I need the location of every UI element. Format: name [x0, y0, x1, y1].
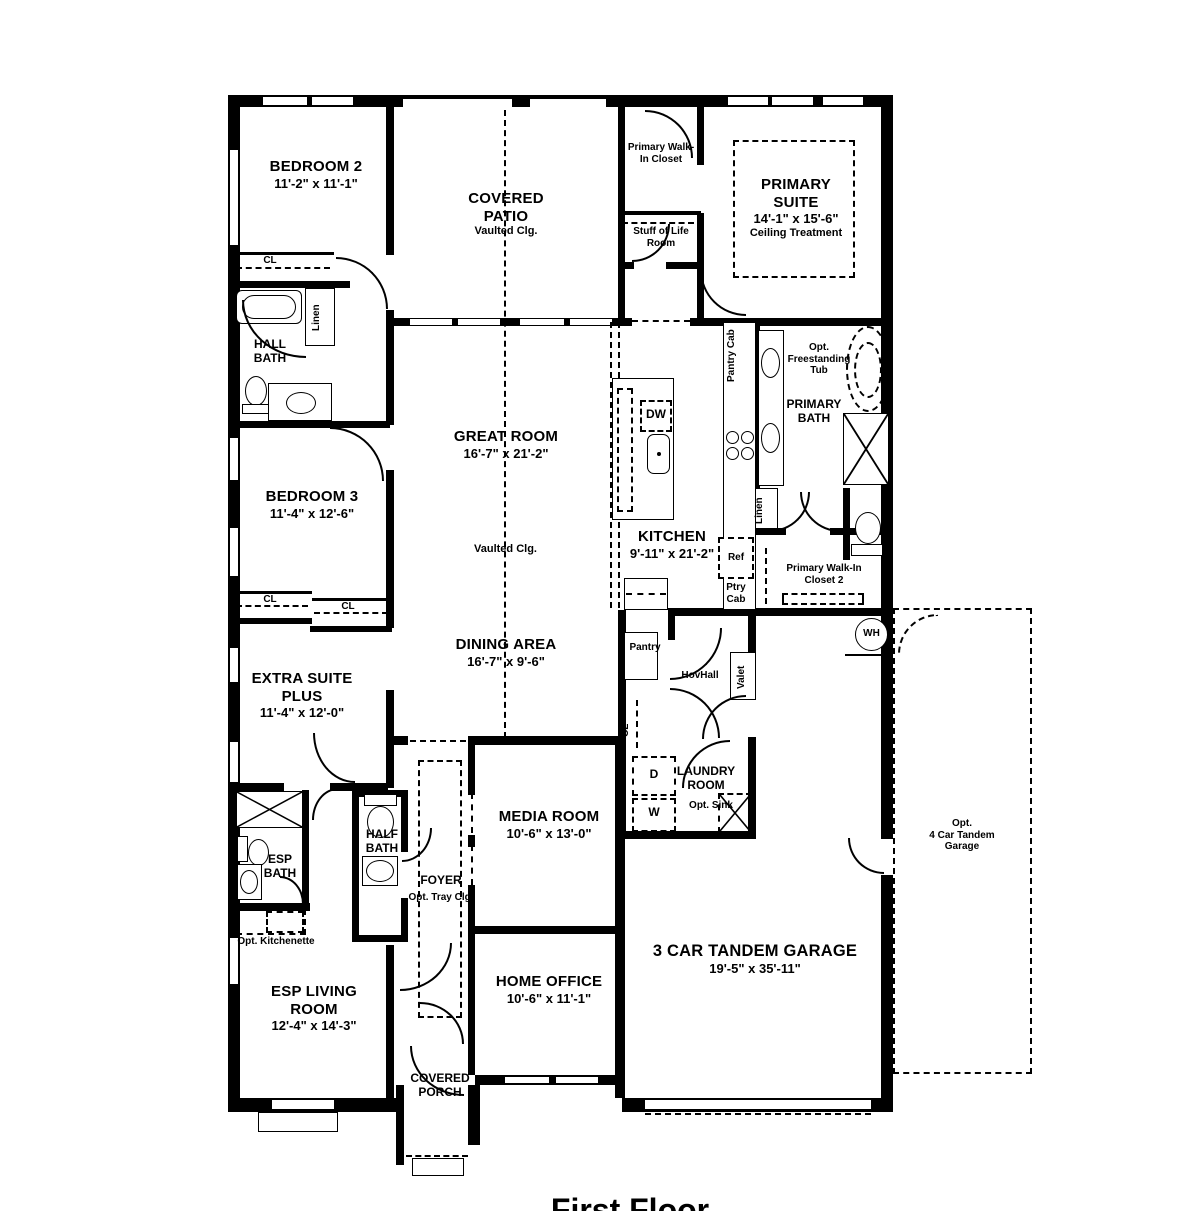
- window: [229, 438, 239, 480]
- room-name: 3 CAR TANDEM GARAGE: [620, 942, 890, 961]
- closet-shelf-dash: [236, 267, 330, 269]
- garage-door: [645, 1099, 871, 1110]
- hall-closet-front: [636, 700, 638, 748]
- opt-kitchenette-label: Opt. Kitchenette: [230, 936, 322, 948]
- washer-label: W: [632, 806, 676, 820]
- room-label-great-room: GREAT ROOM 16'-7" x 21'-2": [440, 428, 572, 461]
- faucet-dot: [657, 452, 661, 456]
- cooktop-burner: [741, 431, 754, 444]
- window: [263, 96, 307, 106]
- wall: [310, 626, 392, 632]
- wh-label: WH: [855, 628, 888, 640]
- room-label-covered-patio: COVERED PATIO Vaulted Clg.: [460, 190, 552, 238]
- room-label-hovhall: HovHall: [670, 670, 730, 682]
- wall-post: [390, 95, 403, 107]
- wall: [468, 885, 475, 1075]
- wall: [398, 95, 618, 99]
- door-arc: [313, 733, 355, 783]
- linen-label: Linen: [754, 490, 765, 532]
- room-name: BEDROOM 2: [240, 158, 392, 176]
- wall: [228, 783, 284, 791]
- garage-door-dash: [645, 1113, 871, 1115]
- great-room-ceiling-label: Vaulted Clg.: [458, 543, 553, 556]
- wall: [302, 790, 309, 908]
- page-title: First Floor: [455, 1192, 805, 1211]
- window: [556, 1076, 598, 1084]
- room-dims: 12'-4" x 14'-3": [240, 1018, 388, 1033]
- room-dims: 16'-7" x 9'-6": [440, 654, 572, 669]
- room-dims: 11'-4" x 12'-6": [237, 506, 387, 521]
- cl-label: CL: [250, 594, 290, 606]
- wall: [386, 470, 394, 628]
- porch-edge-dash: [406, 1155, 468, 1157]
- window: [520, 318, 564, 326]
- shower: [843, 413, 889, 485]
- door-arc: [700, 270, 746, 316]
- window: [229, 528, 239, 576]
- opt-kitchenette-sink: [266, 911, 304, 933]
- wall: [386, 310, 394, 425]
- cooktop-burner: [741, 447, 754, 460]
- laundry-opt-sink-label: Opt. Sink: [688, 800, 734, 812]
- cooktop-burner: [726, 447, 739, 460]
- room-label-media: MEDIA ROOM 10'-6" x 13'-0": [478, 808, 620, 841]
- room-label-extra-suite: EXTRA SUITE PLUS 11'-4" x 12'-0": [237, 670, 367, 721]
- wall: [390, 736, 408, 745]
- door-arc: [848, 838, 884, 874]
- cased-opening: [471, 793, 473, 833]
- window: [272, 1099, 334, 1110]
- room-label-laundry: LAUNDRY ROOM: [664, 765, 748, 793]
- cased-opening: [632, 320, 690, 322]
- room-label-esp-living: ESP LIVING ROOM 12'-4" x 14'-3": [240, 983, 388, 1034]
- valet-label: Valet: [736, 656, 747, 698]
- door-arc: [336, 257, 388, 309]
- door-arc: [312, 788, 338, 820]
- room-name: GREAT ROOM: [440, 428, 572, 446]
- cased-opening: [471, 845, 473, 885]
- room-label-porch: COVERED PORCH: [406, 1072, 474, 1100]
- wall: [843, 488, 850, 560]
- pantry-cab-label: Pantry Cab: [726, 325, 737, 387]
- window: [229, 150, 239, 245]
- ref-label: Ref: [720, 552, 752, 564]
- wall: [228, 281, 350, 288]
- wall: [468, 745, 475, 795]
- room-label-dining: DINING AREA 16'-7" x 9'-6": [440, 636, 572, 669]
- room-name: HOME OFFICE: [478, 973, 620, 991]
- closet2-shelf: [782, 593, 864, 605]
- room-sub: Vaulted Clg.: [460, 225, 552, 238]
- room-name: DINING AREA: [440, 636, 572, 654]
- wall: [618, 262, 634, 269]
- room-sub: Ceiling Treatment: [737, 227, 855, 240]
- cased-opening: [676, 611, 718, 613]
- wall: [666, 262, 703, 269]
- window: [458, 318, 500, 326]
- dryer-label: D: [632, 768, 676, 782]
- window: [410, 318, 452, 326]
- foyer-sub-label: Opt. Tray Clg.: [406, 892, 476, 904]
- toilet-tank: [242, 404, 269, 414]
- wall: [690, 318, 893, 326]
- vanity-sink: [286, 392, 316, 414]
- room-label-hall-bath: HALL BATH: [241, 338, 299, 366]
- wall: [468, 736, 625, 745]
- wall: [396, 1085, 404, 1165]
- room-label-pantry: Pantry: [620, 642, 670, 654]
- wall: [228, 421, 390, 428]
- room-label-stuff-of-life: Stuff of Life Room: [624, 226, 698, 249]
- floor-plan: BEDROOM 2 11'-2" x 11'-1" COVERED PATIO …: [0, 0, 1201, 1211]
- vanity-sink: [761, 348, 780, 378]
- cooktop-burner: [726, 431, 739, 444]
- door-arc: [702, 695, 746, 739]
- cl-label: CL: [328, 601, 368, 613]
- cased-opening: [630, 836, 674, 838]
- wall-post: [512, 95, 530, 107]
- room-dims: 10'-6" x 13'-0": [478, 826, 620, 841]
- room-label-bedroom2: BEDROOM 2 11'-2" x 11'-1": [240, 158, 392, 191]
- closet2-dash: [765, 548, 767, 604]
- room-label-primary-wic: Primary Walk-In Closet: [626, 142, 696, 165]
- room-name: COVERED PATIO: [460, 190, 552, 225]
- shower: [236, 791, 303, 828]
- cl-label: CL: [620, 712, 631, 748]
- opt-garage-label: Opt. 4 Car Tandem Garage: [912, 818, 1012, 853]
- room-label-kitchen: KITCHEN 9'-11" x 21'-2": [626, 528, 718, 561]
- wall: [881, 875, 893, 1112]
- dw-label: DW: [640, 408, 672, 422]
- opt-garage-sub: 4 Car Tandem Garage: [912, 830, 1012, 853]
- room-dims: 11'-2" x 11'-1": [240, 176, 392, 191]
- room-label-garage: 3 CAR TANDEM GARAGE 19'-5" x 35'-11": [620, 942, 890, 977]
- room-name: KITCHEN: [626, 528, 718, 546]
- wall: [352, 790, 359, 942]
- window: [823, 96, 863, 106]
- room-label-half-bath: HALF BATH: [357, 828, 407, 856]
- toilet-tank: [237, 836, 248, 862]
- ptry-cab-label: Ptry Cab: [716, 582, 756, 605]
- window: [312, 96, 353, 106]
- vanity-sink: [761, 423, 780, 453]
- wall: [352, 935, 408, 942]
- wall: [697, 107, 704, 165]
- patio-step: [258, 1112, 338, 1132]
- toilet-bowl: [245, 376, 267, 406]
- opt-sink: [718, 793, 752, 833]
- wh-platform: [845, 614, 891, 616]
- room-dims: 19'-5" x 35'-11": [620, 961, 890, 976]
- opt-garage-name: Opt.: [912, 818, 1012, 830]
- island-counter-dash: [617, 388, 633, 512]
- window: [728, 96, 768, 106]
- room-label-esp-bath: ESP BATH: [254, 853, 306, 881]
- window: [229, 742, 239, 782]
- room-name: BEDROOM 3: [237, 488, 387, 506]
- room-label-home-office: HOME OFFICE 10'-6" x 11'-1": [478, 973, 620, 1006]
- room-label-foyer: FOYER: [412, 874, 470, 888]
- cased-opening: [410, 740, 466, 742]
- room-name: ESP LIVING ROOM: [254, 983, 374, 1018]
- window: [772, 96, 813, 106]
- toilet-bowl: [855, 512, 881, 544]
- freestanding-tub-inner: [854, 342, 882, 398]
- cabinet-dash: [626, 593, 666, 595]
- linen-label: Linen: [311, 294, 322, 342]
- opt-tub-label: Opt. Freestanding Tub: [786, 342, 852, 377]
- room-dims: 11'-4" x 12'-0": [237, 705, 367, 720]
- room-label-bedroom3: BEDROOM 3 11'-4" x 12'-6": [237, 488, 387, 521]
- room-name: MEDIA ROOM: [478, 808, 620, 826]
- cl-label: CL: [250, 255, 290, 267]
- room-dims: 16'-7" x 21'-2": [440, 446, 572, 461]
- pantry-shelf: [624, 632, 658, 680]
- room-name: EXTRA SUITE PLUS: [237, 670, 367, 705]
- wh-platform: [845, 654, 891, 656]
- door-arc: [800, 492, 840, 532]
- door-arc: [330, 427, 384, 481]
- window: [570, 318, 612, 326]
- wall: [228, 618, 312, 624]
- wall: [618, 211, 701, 215]
- vanity-sink: [366, 860, 394, 882]
- toilet-tank: [364, 794, 397, 806]
- room-label-primary-wic2: Primary Walk-In Closet 2: [770, 563, 878, 586]
- window: [505, 1076, 549, 1084]
- porch-step: [412, 1158, 464, 1176]
- room-name: PRIMARY SUITE: [737, 176, 855, 211]
- room-dims: 9'-11" x 21'-2": [626, 546, 718, 561]
- wall: [468, 926, 622, 934]
- wall: [618, 318, 632, 326]
- room-label-primary-suite: PRIMARY SUITE 14'-1" x 15'-6" Ceiling Tr…: [737, 176, 855, 240]
- room-dims: 14'-1" x 15'-6": [737, 211, 855, 226]
- room-label-primary-bath: PRIMARY BATH: [780, 398, 848, 426]
- toilet-tank: [851, 544, 883, 556]
- room-dims: 10'-6" x 11'-1": [478, 991, 620, 1006]
